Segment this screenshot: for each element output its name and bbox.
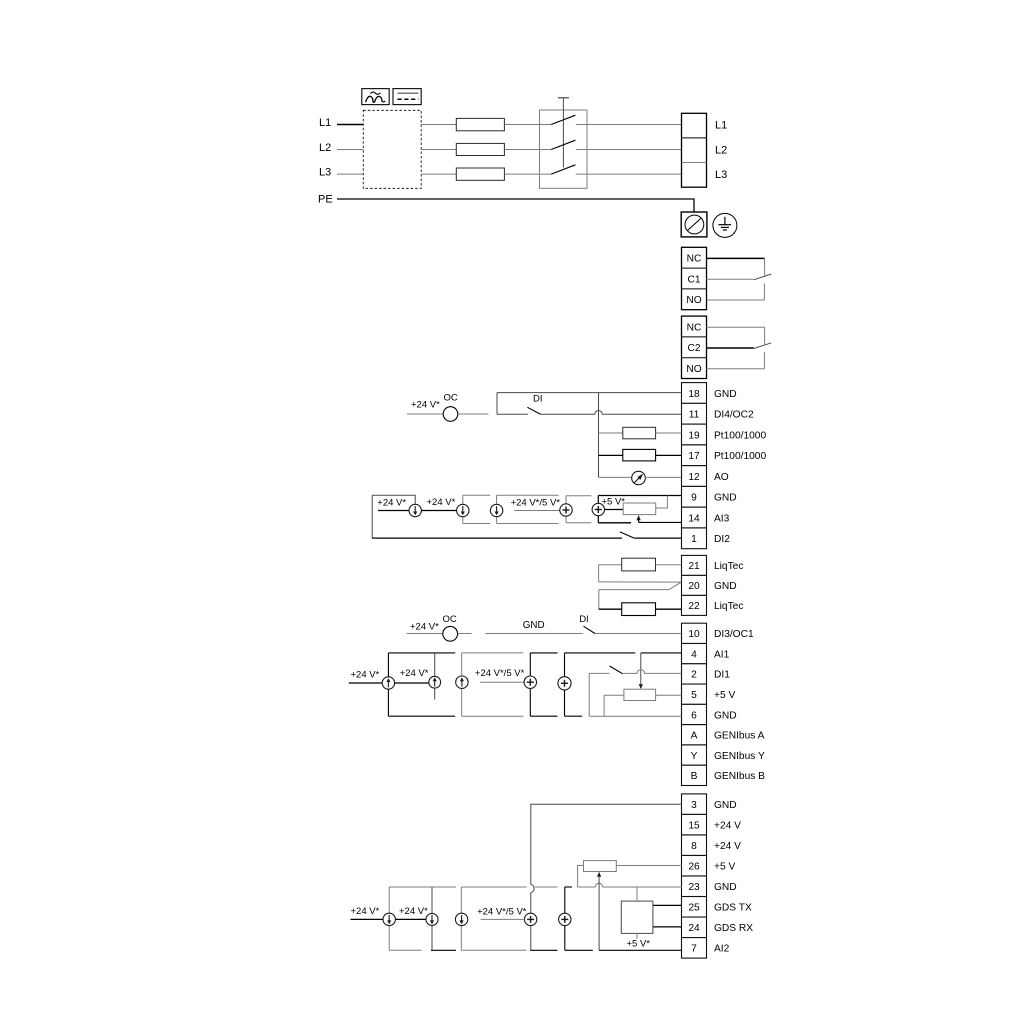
svg-text:26: 26 <box>688 862 700 873</box>
svg-text:GND: GND <box>714 493 737 504</box>
svg-text:+24 V*: +24 V* <box>351 906 380 917</box>
svg-text:LiqTec: LiqTec <box>714 601 743 612</box>
svg-text:PE: PE <box>318 194 333 206</box>
svg-text:DI2: DI2 <box>714 534 730 545</box>
svg-text:20: 20 <box>688 581 700 592</box>
svg-text:B: B <box>691 771 698 782</box>
svg-text:Y: Y <box>691 751 698 762</box>
svg-text:GND: GND <box>714 710 737 721</box>
svg-text:22: 22 <box>688 601 700 612</box>
svg-text:L3: L3 <box>715 169 727 181</box>
svg-text:5: 5 <box>691 690 697 701</box>
svg-text:18: 18 <box>688 389 700 400</box>
svg-text:C2: C2 <box>687 343 700 354</box>
svg-text:+24 V*: +24 V* <box>411 400 440 411</box>
svg-text:+24 V*/5 V*: +24 V*/5 V* <box>511 498 561 509</box>
svg-text:NO: NO <box>686 295 701 306</box>
svg-text:L1: L1 <box>715 120 727 132</box>
svg-text:GDS RX: GDS RX <box>714 923 753 934</box>
svg-text:DI3/OC1: DI3/OC1 <box>714 629 754 640</box>
svg-text:GND: GND <box>714 800 737 811</box>
svg-text:DI1: DI1 <box>714 670 730 681</box>
svg-text:25: 25 <box>688 903 700 914</box>
svg-text:9: 9 <box>691 493 697 504</box>
svg-text:+24 V*: +24 V* <box>410 622 439 633</box>
svg-text:8: 8 <box>691 841 697 852</box>
svg-text:4: 4 <box>691 649 697 660</box>
svg-text:7: 7 <box>691 944 697 955</box>
svg-text:17: 17 <box>688 451 700 462</box>
svg-text:+24 V*/5 V*: +24 V*/5 V* <box>477 907 527 918</box>
svg-text:AO: AO <box>714 472 729 483</box>
svg-text:GENIbus Y: GENIbus Y <box>714 751 765 762</box>
svg-text:21: 21 <box>688 561 700 572</box>
svg-text:GND: GND <box>714 389 737 400</box>
svg-text:12: 12 <box>688 472 700 483</box>
svg-text:+24 V: +24 V <box>714 841 741 852</box>
svg-text:A: A <box>691 731 698 742</box>
svg-text:GENIbus A: GENIbus A <box>714 731 765 742</box>
svg-text:14: 14 <box>688 513 700 524</box>
svg-text:AI1: AI1 <box>714 649 730 660</box>
svg-text:DI4/OC2: DI4/OC2 <box>714 410 754 421</box>
svg-text:3: 3 <box>691 800 697 811</box>
svg-text:+24 V*: +24 V* <box>427 497 456 508</box>
svg-text:GND: GND <box>714 882 737 893</box>
svg-text:19: 19 <box>688 430 700 441</box>
svg-text:+24 V*: +24 V* <box>377 498 406 509</box>
svg-text:+5 V*: +5 V* <box>627 938 651 949</box>
svg-text:L3: L3 <box>319 167 331 179</box>
svg-text:AI3: AI3 <box>714 513 730 524</box>
svg-text:L2: L2 <box>715 144 727 156</box>
svg-text:+24 V*: +24 V* <box>399 906 428 917</box>
svg-text:+5 V: +5 V <box>714 862 735 873</box>
svg-text:1: 1 <box>691 534 697 545</box>
svg-text:AI2: AI2 <box>714 944 730 955</box>
svg-text:NO: NO <box>686 364 701 375</box>
svg-text:DI: DI <box>533 393 543 404</box>
svg-text:Pt100/1000: Pt100/1000 <box>714 430 766 441</box>
svg-text:24: 24 <box>688 923 700 934</box>
svg-text:6: 6 <box>691 710 697 721</box>
svg-text:11: 11 <box>689 410 700 421</box>
svg-text:DI: DI <box>579 614 589 625</box>
svg-text:+24 V*: +24 V* <box>400 668 429 679</box>
svg-text:GENIbus B: GENIbus B <box>714 771 765 782</box>
svg-text:+5 V: +5 V <box>714 690 735 701</box>
svg-text:15: 15 <box>688 820 700 831</box>
svg-text:+24 V*: +24 V* <box>351 670 380 681</box>
svg-text:Pt100/1000: Pt100/1000 <box>714 451 766 462</box>
svg-text:NC: NC <box>687 322 702 333</box>
svg-text:L2: L2 <box>319 142 331 154</box>
svg-text:2: 2 <box>691 670 697 681</box>
svg-text:OC: OC <box>444 393 458 404</box>
svg-text:+5 V*: +5 V* <box>602 497 626 508</box>
svg-text:GND: GND <box>523 620 545 631</box>
svg-text:LiqTec: LiqTec <box>714 561 743 572</box>
svg-text:NC: NC <box>687 254 702 265</box>
svg-text:+24 V: +24 V <box>714 820 741 831</box>
svg-text:L1: L1 <box>319 117 331 129</box>
svg-text:10: 10 <box>688 629 700 640</box>
svg-text:+24 V*/5 V*: +24 V*/5 V* <box>475 668 525 679</box>
svg-text:GND: GND <box>714 581 737 592</box>
svg-text:GDS TX: GDS TX <box>714 903 752 914</box>
svg-text:OC: OC <box>443 614 457 625</box>
svg-text:C1: C1 <box>687 274 700 285</box>
svg-text:23: 23 <box>688 882 700 893</box>
